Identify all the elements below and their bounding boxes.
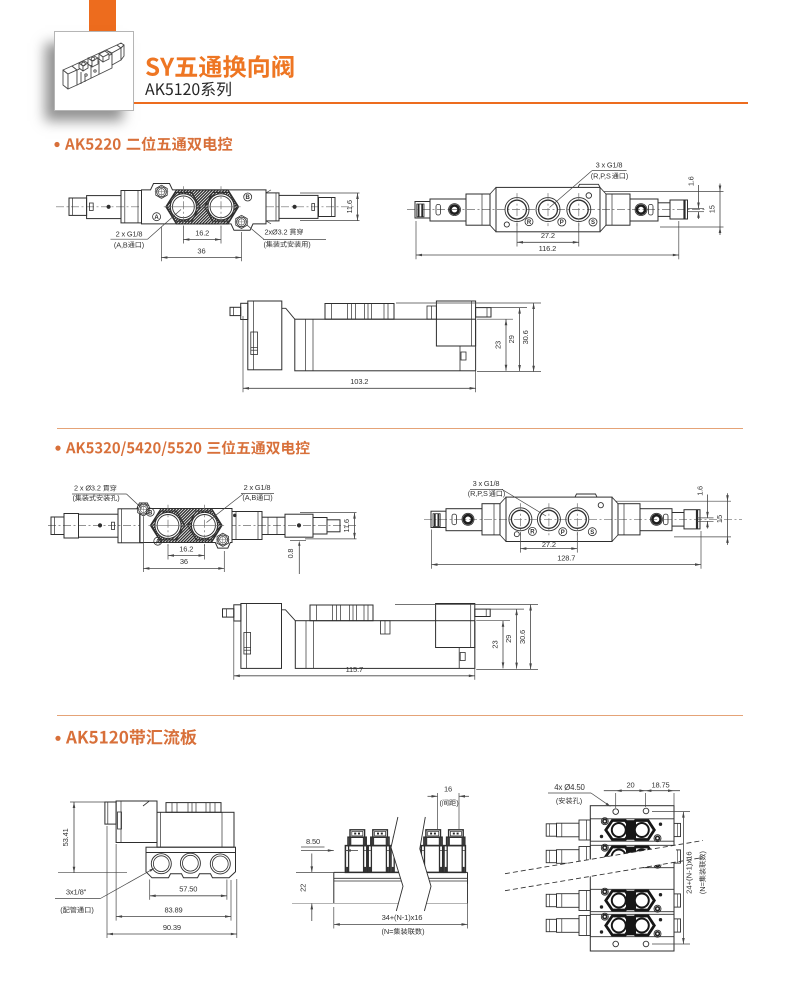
svg-text:(: ( [264, 240, 267, 249]
svg-text:S: S [591, 220, 595, 226]
svg-text:P: P [560, 220, 564, 226]
svg-text:): ) [142, 240, 144, 249]
svg-text:(N=: (N= [382, 927, 394, 936]
svg-text:8.50: 8.50 [306, 837, 320, 846]
svg-text:36: 36 [180, 557, 188, 566]
svg-text:22: 22 [298, 884, 307, 892]
svg-text:23: 23 [493, 341, 502, 349]
svg-text:16: 16 [444, 785, 452, 794]
svg-text:1.6: 1.6 [695, 486, 704, 496]
svg-text:27.2: 27.2 [541, 231, 555, 240]
svg-text:83.89: 83.89 [165, 905, 183, 914]
svg-text:2 x G1/8: 2 x G1/8 [116, 230, 143, 239]
svg-text:3 x G1/8: 3 x G1/8 [473, 479, 500, 488]
svg-text:3x1/8": 3x1/8" [66, 888, 87, 897]
svg-text:(R,P,S: (R,P,S [591, 171, 611, 180]
svg-text:R: R [530, 530, 535, 536]
svg-text:24+(N-1)x16: 24+(N-1)x16 [685, 851, 694, 893]
svg-text:P: P [561, 530, 565, 536]
svg-text:20: 20 [626, 781, 634, 790]
svg-text:29: 29 [507, 335, 516, 343]
svg-text:): ) [626, 171, 628, 180]
svg-text:29: 29 [504, 635, 513, 643]
svg-text:30.6: 30.6 [521, 330, 530, 344]
svg-text:B: B [148, 510, 153, 516]
svg-text:15: 15 [715, 515, 724, 523]
svg-text:57.50: 57.50 [179, 885, 197, 894]
svg-text:A: A [156, 539, 161, 545]
svg-text:15: 15 [708, 205, 717, 213]
svg-text:(: ( [556, 796, 559, 805]
svg-text:36: 36 [197, 246, 205, 255]
svg-text:(: ( [73, 494, 76, 503]
svg-text:128.7: 128.7 [557, 553, 575, 562]
svg-text:53.41: 53.41 [61, 828, 70, 846]
svg-text:11.6: 11.6 [342, 519, 351, 532]
svg-text:1.6: 1.6 [686, 176, 695, 186]
svg-text:(: ( [60, 906, 63, 915]
svg-text:34+(N-1)x16: 34+(N-1)x16 [382, 913, 423, 922]
svg-text:): ) [456, 798, 458, 807]
svg-text:(R,P,S: (R,P,S [468, 489, 488, 498]
svg-text:90.39: 90.39 [163, 923, 181, 932]
svg-text:(A,B: (A,B [114, 240, 128, 249]
svg-text:): ) [698, 851, 707, 853]
svg-text:16.2: 16.2 [179, 544, 193, 553]
svg-text:2 x G1/8: 2 x G1/8 [244, 483, 271, 492]
svg-text:): ) [308, 240, 310, 249]
svg-text:): ) [91, 906, 93, 915]
svg-text:115.7: 115.7 [346, 665, 363, 674]
svg-text:B: B [246, 195, 251, 201]
svg-text:): ) [270, 493, 272, 502]
svg-text:2xØ3.2: 2xØ3.2 [265, 227, 288, 236]
svg-text:(N=: (N= [698, 882, 707, 894]
svg-text:2 x Ø3.2: 2 x Ø3.2 [74, 484, 101, 493]
svg-text:): ) [580, 796, 582, 805]
svg-text:23: 23 [490, 641, 499, 649]
svg-text:S: S [590, 530, 594, 536]
svg-text:0.8: 0.8 [286, 549, 295, 559]
svg-text:(A,B: (A,B [242, 493, 256, 502]
svg-text:27.2: 27.2 [542, 540, 556, 549]
svg-text:18.75: 18.75 [651, 781, 669, 790]
svg-text:): ) [422, 927, 424, 936]
svg-text:3 x G1/8: 3 x G1/8 [596, 160, 623, 169]
svg-text:30.6: 30.6 [518, 630, 527, 644]
svg-text:R: R [527, 220, 532, 226]
svg-text:16.2: 16.2 [195, 228, 209, 237]
svg-text:116.2: 116.2 [539, 244, 556, 253]
svg-text:103.2: 103.2 [350, 377, 368, 386]
svg-text:): ) [117, 494, 119, 503]
svg-text:A: A [154, 215, 159, 221]
svg-text:4x Ø4.50: 4x Ø4.50 [554, 783, 585, 792]
svg-text:(: ( [440, 798, 443, 807]
svg-text:11.6: 11.6 [345, 200, 354, 213]
